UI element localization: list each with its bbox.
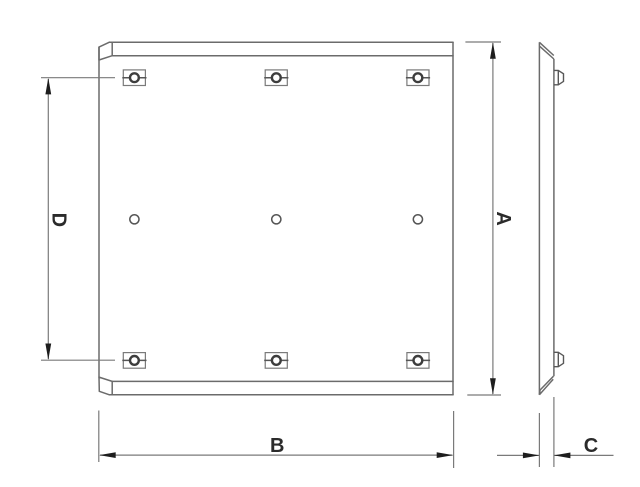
svg-text:C: C [584,435,598,457]
svg-text:A: A [492,211,514,225]
svg-text:D: D [48,213,70,227]
svg-text:B: B [270,435,284,457]
